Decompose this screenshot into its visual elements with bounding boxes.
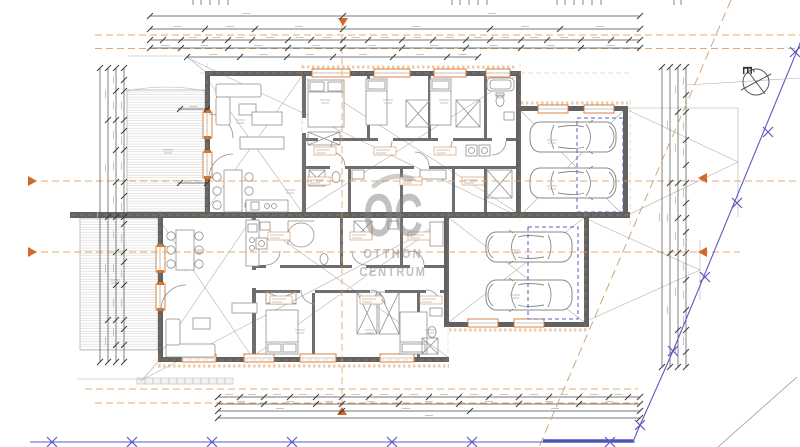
floor-plan-page: É OC OTTHON CENTRUM bbox=[0, 0, 800, 447]
floor-plan-drawing: É OC OTTHON CENTRUM bbox=[0, 0, 800, 447]
car-icon bbox=[486, 278, 572, 312]
car-icon bbox=[530, 166, 616, 200]
north-label: É bbox=[740, 66, 755, 75]
watermark-monogram: OC bbox=[363, 182, 422, 249]
setback-diagonal-line bbox=[539, 0, 731, 447]
north-arrow-icon: É bbox=[687, 66, 800, 95]
top-edge-survey-ticks bbox=[193, 0, 681, 5]
watermark-line2: CENTRUM bbox=[359, 265, 426, 279]
terrace-lower bbox=[80, 218, 158, 350]
car-icon bbox=[486, 230, 572, 264]
neighbor-boundary-line bbox=[718, 377, 797, 447]
garage-lower bbox=[486, 227, 578, 319]
watermark-line1: OTTHON bbox=[363, 247, 423, 261]
terrace-upper bbox=[127, 87, 205, 212]
garage-upper bbox=[530, 118, 623, 212]
watermark: OC OTTHON CENTRUM bbox=[359, 176, 426, 279]
car-icon bbox=[530, 120, 616, 154]
entry-walkway bbox=[137, 378, 233, 384]
